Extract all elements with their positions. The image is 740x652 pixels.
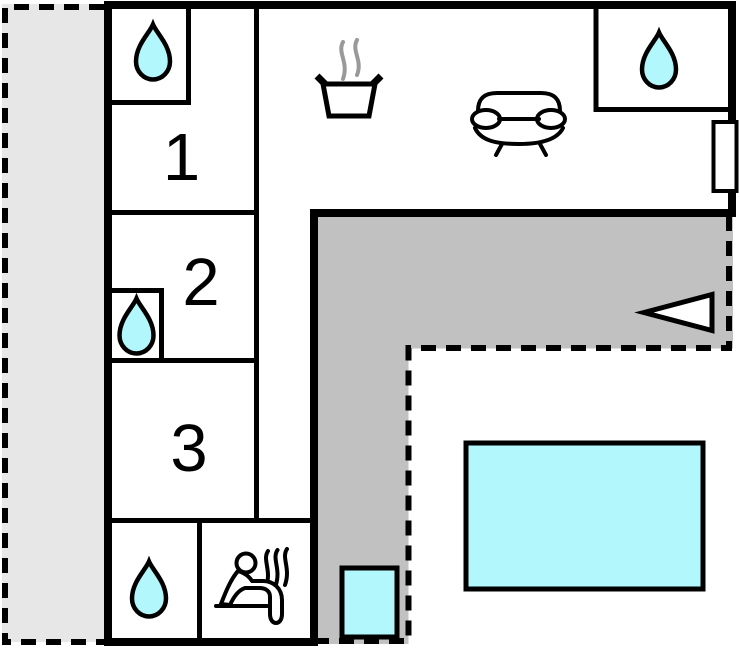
- room-1-label: 1: [163, 120, 200, 195]
- sauna-steam-line: [276, 550, 278, 586]
- sofa-arm-left: [472, 110, 500, 128]
- window-marker: [714, 122, 737, 191]
- room-3-label: 3: [170, 411, 207, 486]
- pool-rect: [466, 443, 703, 589]
- room-2-label: 2: [182, 245, 219, 320]
- hot-tub-rect: [342, 568, 397, 637]
- floor-plan: 1 2 3: [0, 0, 740, 652]
- sauna-steam-line: [285, 549, 287, 585]
- floor-plan-stage: 1 2 3: [0, 0, 740, 652]
- pot-body: [323, 84, 375, 116]
- sofa-arm-right: [537, 110, 565, 128]
- left-outdoor-area: [2, 4, 104, 642]
